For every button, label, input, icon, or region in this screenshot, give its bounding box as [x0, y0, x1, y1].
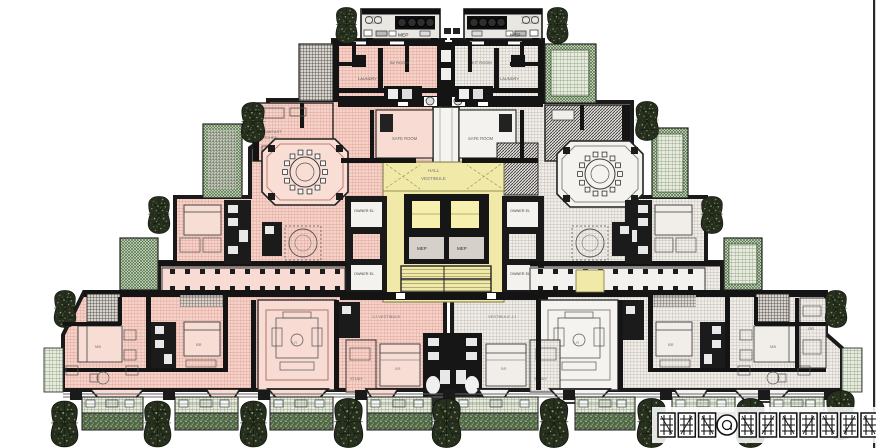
svg-text:J.J VESTIBULE: J.J VESTIBULE	[372, 314, 401, 319]
svg-text:BR: BR	[501, 366, 507, 371]
svg-text:VESTIBULE: VESTIBULE	[421, 176, 446, 181]
svg-text:MB: MB	[95, 344, 101, 349]
svg-text:MEP: MEP	[398, 33, 408, 39]
svg-text:MB: MB	[770, 344, 776, 349]
svg-text:MEP: MEP	[457, 246, 467, 251]
svg-text:HALL: HALL	[428, 168, 440, 173]
svg-text:OWNER EL: OWNER EL	[510, 209, 530, 213]
svg-text:SAFE ROOM: SAFE ROOM	[468, 136, 494, 141]
svg-text:BR: BR	[668, 342, 674, 347]
svg-text:MEP: MEP	[417, 246, 427, 251]
svg-text:MEP: MEP	[510, 33, 520, 39]
svg-text:OWNER EL: OWNER EL	[510, 272, 530, 276]
svg-text:OR: OR	[808, 326, 814, 331]
svg-text:SAFE ROOM: SAFE ROOM	[392, 136, 418, 141]
svg-text:OWNER EL: OWNER EL	[354, 272, 374, 276]
svg-text:AV ROOM: AV ROOM	[390, 60, 409, 65]
svg-text:LAUNDRY: LAUNDRY	[500, 76, 519, 81]
svg-text:KIT ROOM: KIT ROOM	[472, 60, 492, 65]
svg-text:LAUNDRY: LAUNDRY	[358, 76, 377, 81]
svg-text:BR: BR	[196, 342, 202, 347]
svg-text:OWNER EL: OWNER EL	[354, 209, 374, 213]
svg-text:VESTIBULE J.J: VESTIBULE J.J	[488, 314, 516, 319]
svg-text:STUDY: STUDY	[350, 377, 363, 381]
svg-text:LR: LR	[574, 340, 579, 345]
svg-text:BR: BR	[395, 366, 401, 371]
svg-text:LR: LR	[292, 340, 297, 345]
